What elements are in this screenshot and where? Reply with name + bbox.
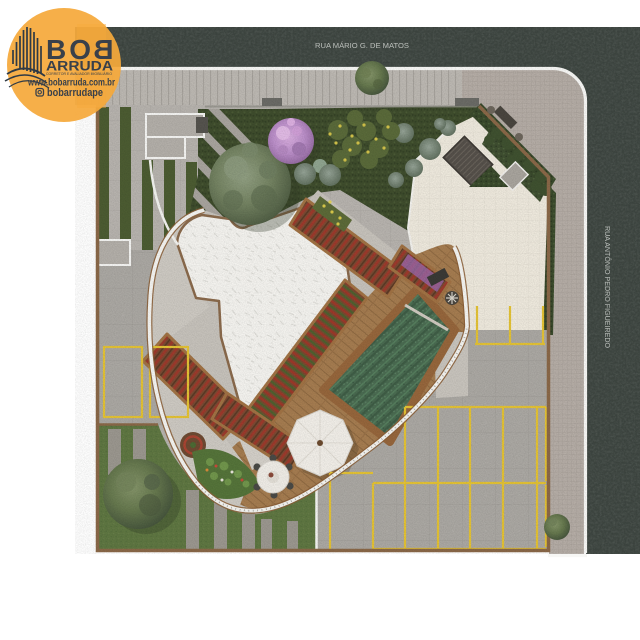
svg-text:CORRETOR E AVALIADOR IMOBILIÁR: CORRETOR E AVALIADOR IMOBILIÁRIO xyxy=(46,72,112,76)
svg-text:bobarrudape: bobarrudape xyxy=(47,87,103,99)
